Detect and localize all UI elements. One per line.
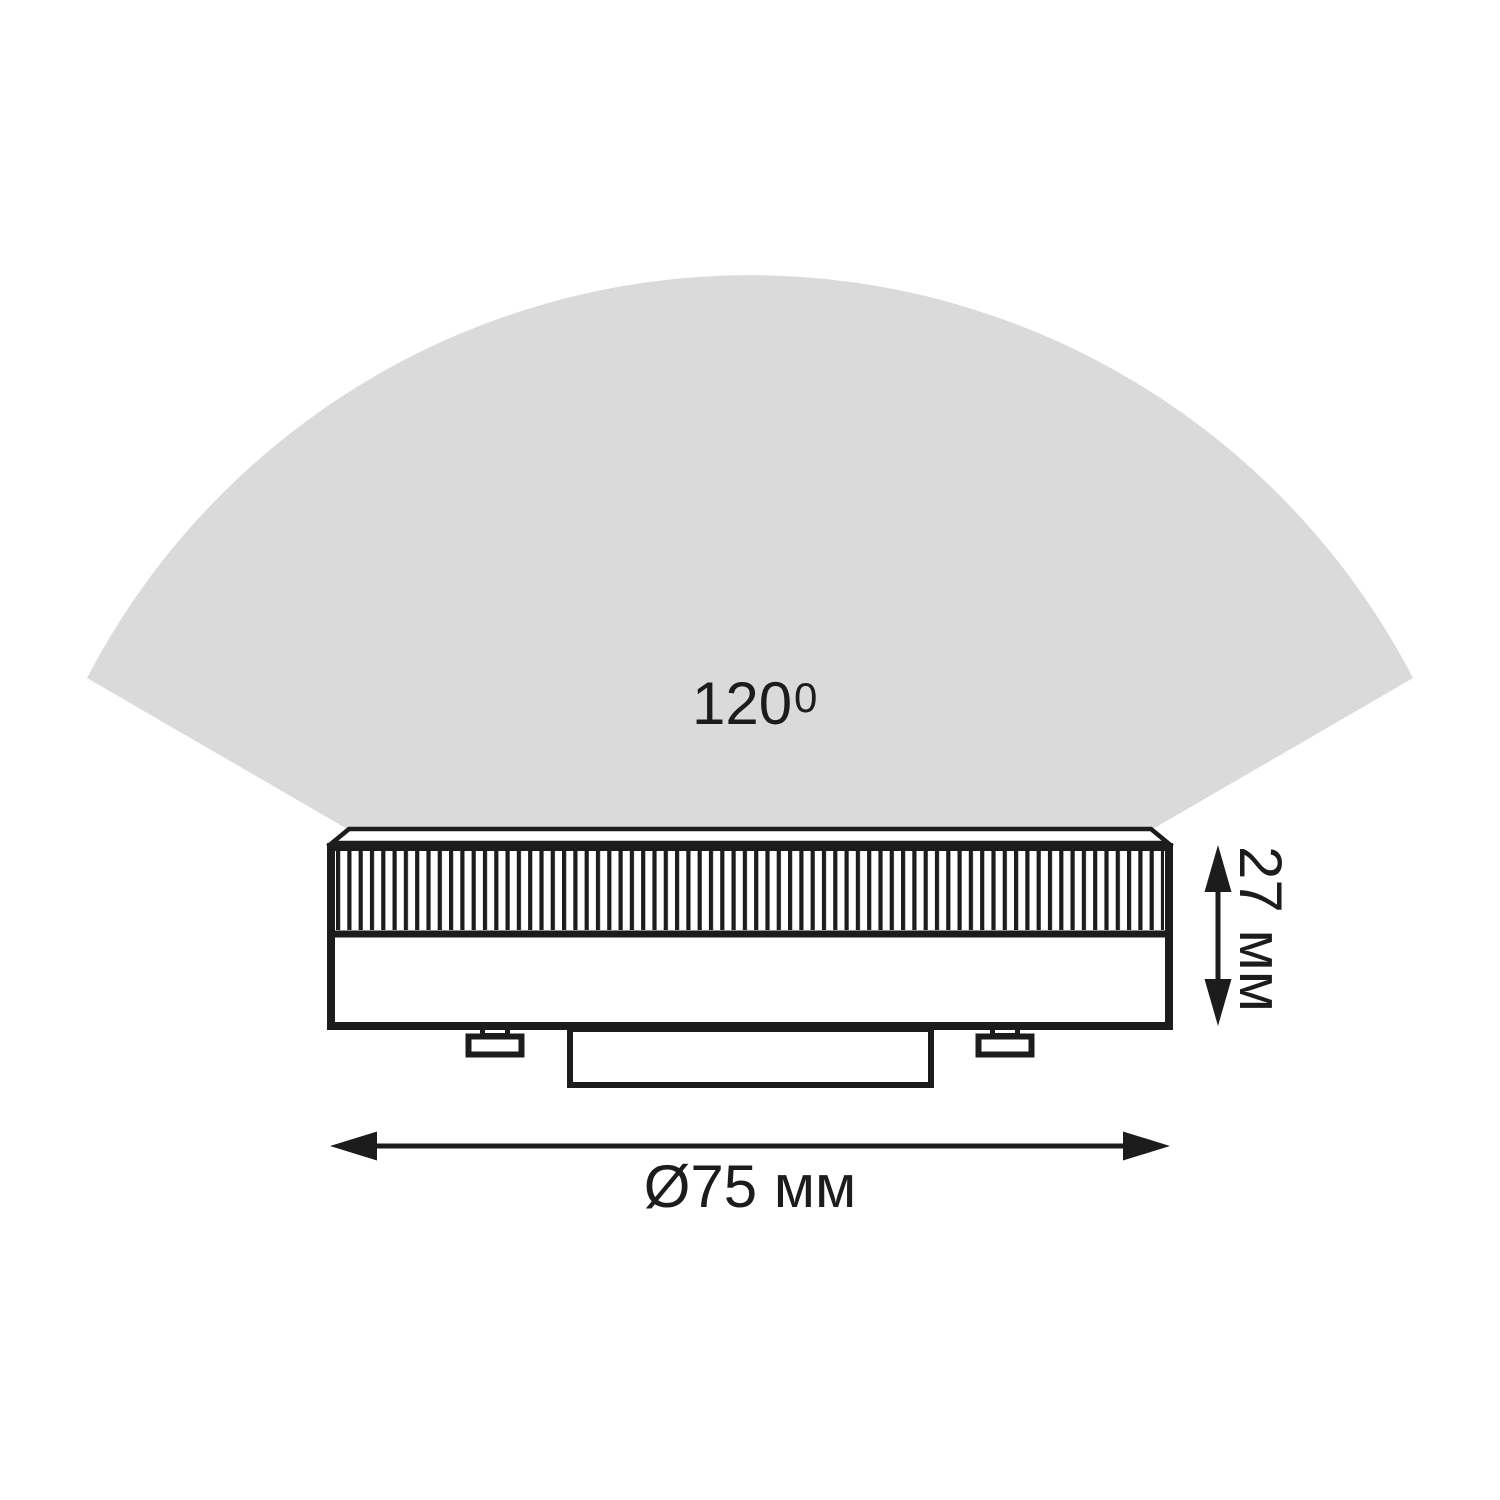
- lamp-lens-top: [332, 829, 1168, 843]
- pin-cap: [979, 1037, 1032, 1055]
- diagram-canvas: 120 0 Ø75 мм 27 мм: [0, 0, 1500, 1500]
- beam-cone-shape: [87, 275, 1413, 830]
- ribs-texture: [336, 851, 1164, 930]
- height-label: 27 мм: [1227, 846, 1294, 1012]
- lamp-dimension-diagram: 120 0 Ø75 мм 27 мм: [0, 0, 1500, 1500]
- beam-angle-label: 120: [692, 670, 792, 737]
- diameter-label: Ø75 мм: [644, 1153, 857, 1220]
- arrowhead-left: [330, 1132, 377, 1161]
- pin-cap: [469, 1037, 522, 1055]
- lamp-body-drawing: [331, 829, 1169, 1085]
- contact-pin-right: [979, 1027, 1032, 1055]
- lamp-base-block: [570, 1029, 931, 1085]
- beam-angle-superscript: 0: [794, 674, 817, 721]
- arrowhead-right: [1123, 1132, 1170, 1161]
- contact-pin-left: [469, 1027, 522, 1055]
